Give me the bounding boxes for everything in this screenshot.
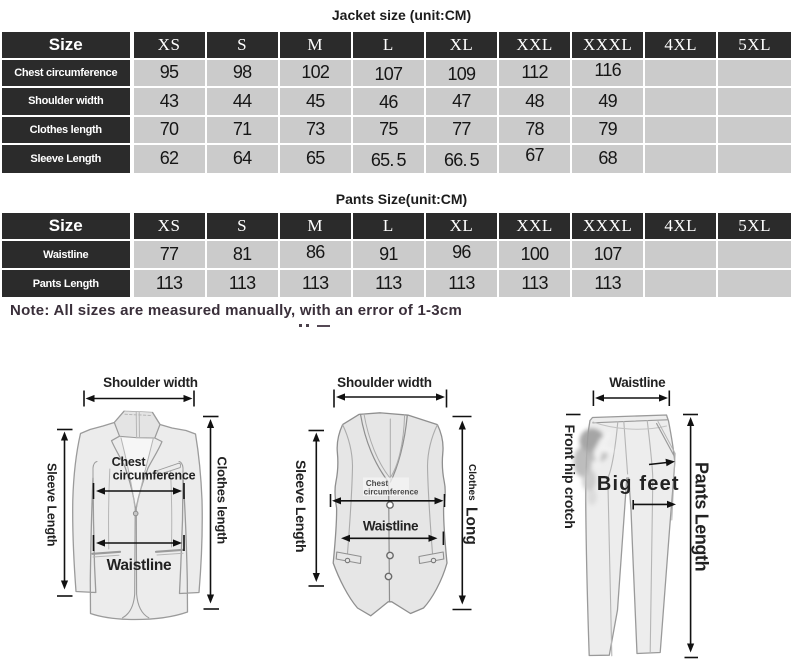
- svg-text:circumference: circumference: [364, 488, 419, 497]
- svg-text:Sleeve Length: Sleeve Length: [293, 460, 309, 552]
- svg-text:Front hip crotch: Front hip crotch: [562, 425, 578, 529]
- svg-text:Shoulder width: Shoulder width: [103, 375, 198, 390]
- svg-text:Big feet: Big feet: [597, 473, 680, 495]
- svg-text:circumference: circumference: [113, 469, 196, 483]
- svg-text:Pants Length: Pants Length: [692, 462, 712, 571]
- svg-text:Waistline: Waistline: [609, 375, 666, 390]
- svg-text:Chest: Chest: [112, 455, 147, 469]
- svg-text:Long: Long: [463, 507, 480, 545]
- svg-text:Clothes: Clothes: [466, 464, 477, 501]
- svg-text:Waistline: Waistline: [107, 557, 172, 574]
- svg-text:Waistline: Waistline: [363, 519, 419, 534]
- svg-text:Clothes length: Clothes length: [215, 457, 230, 545]
- svg-text:Sleeve Length: Sleeve Length: [45, 463, 59, 546]
- svg-text:Shoulder width: Shoulder width: [337, 375, 432, 390]
